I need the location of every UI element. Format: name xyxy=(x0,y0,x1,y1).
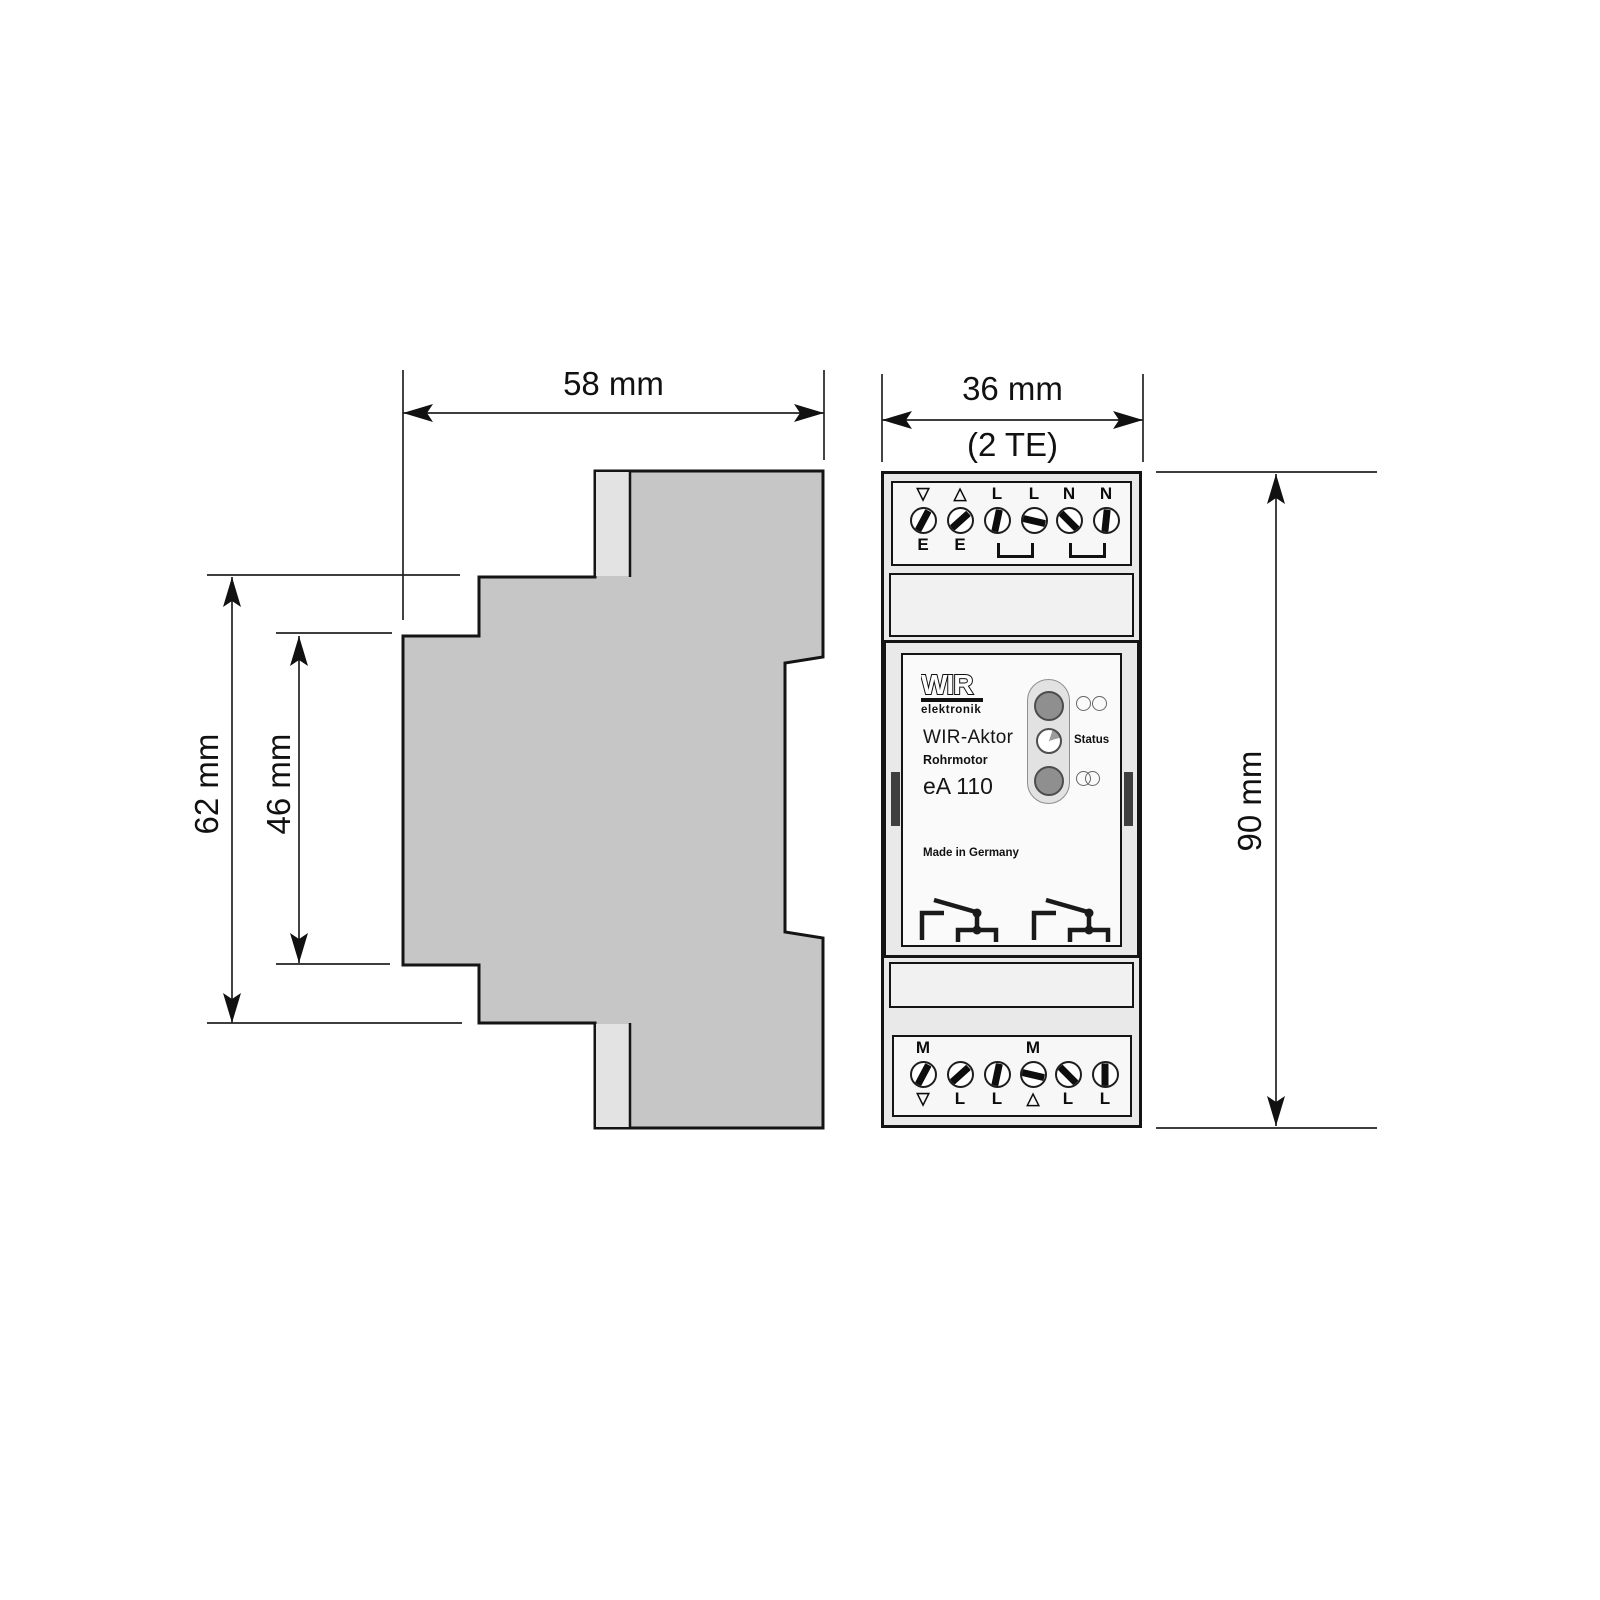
terminal-label-below: E xyxy=(942,534,978,556)
led-pill xyxy=(1027,679,1070,804)
overlap-circles-icon xyxy=(1085,771,1100,786)
screw-slot-icon xyxy=(1022,515,1046,527)
product-name: WIR-Aktor xyxy=(923,727,1013,749)
screw-slot-icon xyxy=(915,509,932,533)
terminal-label-above: M xyxy=(1015,1037,1051,1059)
brand-logo-subtext: elektronik xyxy=(921,704,981,716)
screw-terminal[interactable] xyxy=(1093,507,1120,534)
terminal-label-above: L xyxy=(979,483,1015,505)
terminal-label-above xyxy=(942,1037,978,1059)
dim-label-62mm: 62 mm xyxy=(186,714,228,854)
terminal-label-above xyxy=(1087,1037,1123,1059)
screw-terminal[interactable] xyxy=(910,1061,937,1088)
side-profile-top-strip xyxy=(596,472,629,576)
screw-slot-icon xyxy=(1102,1063,1109,1086)
product-subtitle: Rohrmotor xyxy=(923,753,988,767)
terminal-label-below: ▽ xyxy=(905,1088,941,1110)
terminal-label-above xyxy=(979,1037,1015,1059)
dim-label-36mm: 36 mm xyxy=(882,368,1143,410)
relay-pivot-dot xyxy=(973,926,982,935)
screw-terminal[interactable] xyxy=(1021,507,1048,534)
screw-terminal[interactable] xyxy=(910,507,937,534)
top-terminal-block: ▽E△ELLNN xyxy=(891,481,1132,566)
screw-slot-icon xyxy=(1058,510,1079,531)
terminal-column: ▽E xyxy=(905,483,941,556)
terminal-column: L xyxy=(979,1037,1015,1110)
made-in-label: Made in Germany xyxy=(923,847,1019,859)
dim-label-46mm: 46 mm xyxy=(258,714,300,854)
terminal-label-above: N xyxy=(1088,483,1124,505)
din-clip-tab-right xyxy=(1124,772,1133,826)
terminal-column: L xyxy=(1016,483,1052,556)
terminal-column: M▽ xyxy=(905,1037,941,1110)
terminal-label-below xyxy=(979,534,1015,556)
terminal-label-below: E xyxy=(905,534,941,556)
terminal-column: △E xyxy=(942,483,978,556)
dim-label-2te: (2 TE) xyxy=(882,424,1143,466)
terminal-column: N xyxy=(1051,483,1087,556)
terminal-label-above xyxy=(1050,1037,1086,1059)
label-panel: WIR elektronik WIR-Aktor Rohrmotor eA 11… xyxy=(901,653,1122,947)
screw-slot-icon xyxy=(991,1063,1003,1087)
terminal-label-above: △ xyxy=(942,483,978,505)
brand-logo: WIR elektronik xyxy=(921,667,1001,719)
screw-terminal[interactable] xyxy=(947,1061,974,1088)
terminal-label-below: L xyxy=(942,1088,978,1110)
screw-slot-icon xyxy=(1101,509,1110,533)
drawing-linework xyxy=(0,0,1600,1600)
brand-logo-text: WIR xyxy=(921,669,973,700)
relay-pivot-dot xyxy=(973,909,982,918)
technical-drawing-page: 58 mm 62 mm 46 mm 36 mm (2 TE) 90 mm ▽E△… xyxy=(0,0,1600,1600)
terminal-label-above: M xyxy=(905,1037,941,1059)
screw-slot-icon xyxy=(915,1063,932,1087)
terminal-label-below xyxy=(1088,534,1124,556)
relay-symbol xyxy=(1034,900,1108,942)
side-profile-bottom-strip xyxy=(596,1024,629,1127)
screw-terminal[interactable] xyxy=(1092,1061,1119,1088)
terminal-column: N xyxy=(1088,483,1124,556)
terminal-column: L xyxy=(1087,1037,1123,1110)
dim-label-58mm: 58 mm xyxy=(403,363,824,405)
screw-terminal[interactable] xyxy=(1020,1061,1047,1088)
up-button[interactable] xyxy=(1034,691,1064,721)
down-button[interactable] xyxy=(1034,766,1064,796)
terminal-column: L xyxy=(942,1037,978,1110)
screw-terminal[interactable] xyxy=(1056,507,1083,534)
terminal-label-below: L xyxy=(1050,1088,1086,1110)
screw-terminal[interactable] xyxy=(1055,1061,1082,1088)
screw-slot-icon xyxy=(991,509,1003,533)
terminal-label-below xyxy=(1051,534,1087,556)
brand-logo-underline xyxy=(921,698,983,702)
dim-label-90mm: 90 mm xyxy=(1229,731,1271,871)
terminal-label-above: L xyxy=(1016,483,1052,505)
screw-slot-icon xyxy=(1057,1064,1078,1085)
status-label: Status xyxy=(1074,734,1109,746)
relay-contact-symbols xyxy=(917,895,1117,947)
terminal-column: L xyxy=(979,483,1015,556)
model-number: eA 110 xyxy=(923,773,993,800)
screw-slot-icon xyxy=(949,510,971,531)
terminal-label-above: ▽ xyxy=(905,483,941,505)
terminal-label-below: L xyxy=(1087,1088,1123,1110)
indicator-circle-icon xyxy=(1092,696,1107,711)
upper-spacer-band xyxy=(889,573,1134,637)
din-clip-tab-left xyxy=(891,772,900,826)
screw-terminal[interactable] xyxy=(984,507,1011,534)
screw-terminal[interactable] xyxy=(947,507,974,534)
relay-symbol xyxy=(922,900,996,942)
indicator-circle-icon xyxy=(1076,696,1091,711)
terminal-column: L xyxy=(1050,1037,1086,1110)
bottom-terminal-block: M▽LLM△LL xyxy=(892,1035,1132,1117)
side-profile-view xyxy=(403,471,823,1128)
terminal-label-below: △ xyxy=(1015,1088,1051,1110)
terminal-label-below: L xyxy=(979,1088,1015,1110)
terminal-column: M△ xyxy=(1015,1037,1051,1110)
screw-terminal[interactable] xyxy=(984,1061,1011,1088)
screw-slot-icon xyxy=(1021,1069,1045,1081)
terminal-label-below xyxy=(1016,534,1052,556)
lower-spacer-band xyxy=(889,962,1134,1008)
terminal-label-above: N xyxy=(1051,483,1087,505)
status-knob[interactable] xyxy=(1036,728,1062,754)
screw-slot-icon xyxy=(949,1064,971,1085)
